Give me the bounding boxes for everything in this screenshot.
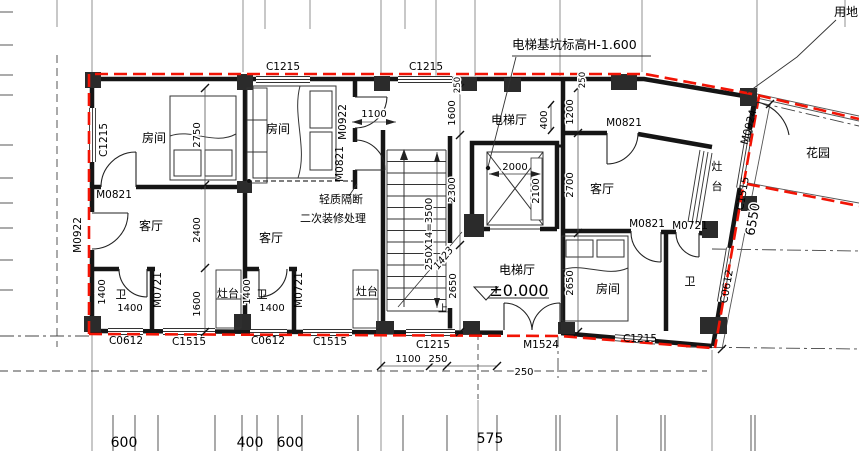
dim-label: 400 — [539, 110, 550, 129]
room-label-bedroom: 房间 — [142, 130, 166, 145]
door-label: M0924 — [739, 108, 760, 146]
door-label: M0821 — [96, 189, 132, 201]
room-label-living: 客厅 — [590, 181, 614, 196]
garden-label: 花园 — [806, 145, 830, 160]
dim-label: 2700 — [565, 172, 576, 197]
dim-label: 575 — [477, 431, 504, 447]
window-label: C1515 — [172, 336, 206, 348]
room-label-bath: 卫 — [116, 288, 127, 301]
dim-label: 1400 — [242, 279, 253, 304]
room-label-stove-vertical: 台 — [712, 179, 723, 193]
window-label: C0612 — [109, 335, 143, 347]
door-label: M0922 — [72, 217, 84, 253]
dim-label: 1600 — [192, 291, 203, 316]
partition-note-line2: 二次装修处理 — [300, 211, 366, 225]
dim-label: 1100 — [361, 109, 386, 120]
window-label: C1215 — [623, 333, 657, 345]
room-label-elevator-hall: 电梯厅 — [491, 113, 527, 127]
dim-label: 1600 — [447, 100, 458, 125]
floor-plan-canvas: 电梯基坑标高H-1.600 用地 花园 C1215 C1215 C1215 C0… — [0, 0, 859, 451]
dim-label: 1400 — [117, 303, 142, 314]
dim-label: 250 — [514, 367, 533, 378]
windows — [90, 77, 753, 345]
room-label-bedroom: 房间 — [266, 121, 290, 136]
wardrobe-middle — [247, 88, 267, 183]
door-label: M1524 — [523, 339, 559, 351]
door-label: M0821 — [629, 218, 665, 230]
room-label-stove: 灶台 — [217, 286, 239, 300]
dim-label: 2100 — [531, 178, 542, 203]
dim-label: 1423 — [432, 245, 456, 272]
dim-label: 2650 — [565, 270, 576, 295]
window-label: C1215 — [266, 61, 300, 73]
dim-label: 1400 — [259, 303, 284, 314]
bed-left — [170, 96, 236, 180]
dim-label-stair-run: 250X14=3500 — [424, 198, 435, 271]
structural-columns — [84, 72, 757, 334]
door-label: M0721 — [293, 272, 305, 308]
window-label: C1215 — [409, 61, 443, 73]
dim-label: 250 — [453, 77, 463, 93]
room-label-stove-vertical: 灶 — [712, 160, 723, 173]
dim-label: 2650 — [448, 273, 459, 298]
dim-label: 600 — [111, 435, 138, 451]
door-label: M0721 — [672, 220, 708, 232]
room-label-bedroom: 房间 — [596, 281, 620, 296]
dim-label: 2000 — [502, 162, 527, 173]
dim-label: 250 — [578, 72, 588, 88]
window-label: C1215 — [98, 123, 110, 157]
room-label-bath: 卫 — [685, 275, 696, 288]
door-label: M0922 — [337, 104, 349, 140]
window-label: C1215 — [416, 339, 450, 351]
dimension-arrows — [352, 119, 541, 308]
floor-plan-drawing: 电梯基坑标高H-1.600 用地 花园 C1215 C1215 C1215 C0… — [0, 0, 859, 451]
dim-label: 2300 — [447, 177, 458, 202]
dim-label: 1100 — [395, 354, 420, 365]
floor-level-label: ±0.000 — [489, 281, 548, 300]
dim-label: 1200 — [565, 99, 576, 124]
dim-label: 400 — [237, 435, 264, 451]
window-label: C0612 — [251, 335, 285, 347]
stove-counter-right — [688, 150, 712, 225]
dim-label: 2400 — [192, 217, 203, 242]
dim-label: 600 — [277, 435, 304, 451]
stove-counter-middle — [353, 270, 378, 328]
dim-label: 250 — [428, 354, 447, 365]
stair-up-label: 上 — [438, 303, 448, 315]
room-label-living: 客厅 — [139, 218, 163, 233]
room-label-elevator-hall: 电梯厅 — [499, 263, 535, 277]
window-label: C0612 — [718, 269, 736, 305]
door-label: M0721 — [152, 272, 164, 308]
site-boundary-label: 用地 — [834, 5, 858, 19]
elevator-pit-note: 电梯基坑标高H-1.600 — [512, 37, 637, 52]
dim-label: 2750 — [192, 122, 203, 147]
dim-label: 1400 — [97, 279, 108, 304]
room-label-living: 客厅 — [259, 230, 283, 245]
stair-up-arrow — [400, 149, 408, 160]
window-label: C1515 — [313, 336, 347, 348]
door-label: M0821 — [606, 117, 642, 129]
room-label-bath: 卫 — [257, 288, 268, 301]
room-label-stove: 灶台 — [356, 284, 378, 298]
walls — [90, 79, 756, 346]
door-label: M0821 — [334, 146, 346, 182]
partition-note-line1: 轻质隔断 — [319, 192, 363, 206]
